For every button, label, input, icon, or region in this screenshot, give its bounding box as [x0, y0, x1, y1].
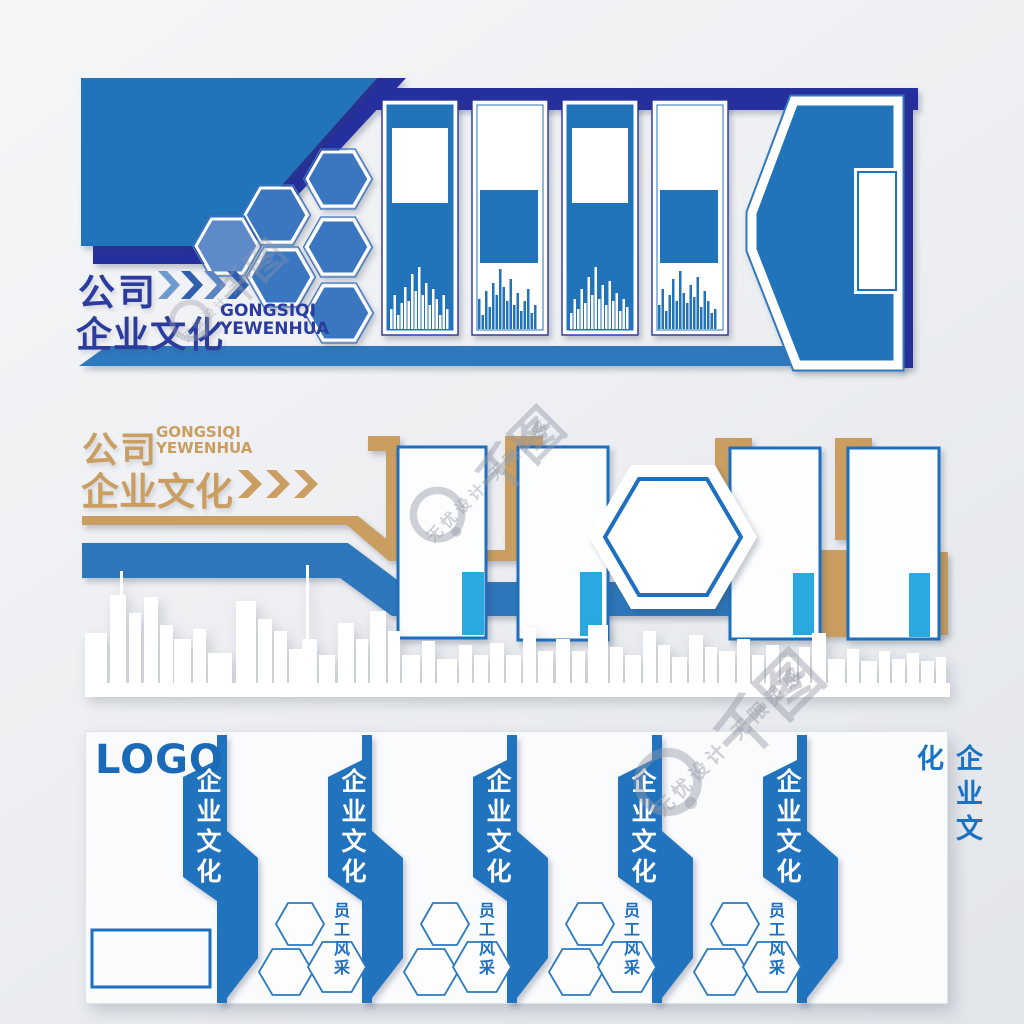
building [110, 595, 126, 683]
hexagon-frame-icon [421, 903, 469, 945]
big-hexagon-board [752, 101, 900, 365]
building [907, 653, 919, 683]
building [236, 601, 256, 683]
building [936, 657, 946, 683]
bar [531, 313, 534, 329]
bar [499, 269, 502, 329]
bar [672, 279, 675, 329]
building [812, 633, 826, 683]
building [437, 659, 457, 683]
bar [429, 305, 432, 329]
bar [524, 301, 527, 329]
bar [577, 309, 580, 329]
bar [446, 309, 449, 329]
building [556, 639, 570, 683]
building [506, 655, 521, 683]
bar [686, 303, 689, 329]
building [388, 631, 400, 683]
bar [520, 311, 523, 329]
building [737, 639, 750, 683]
bar [418, 267, 421, 329]
bar [485, 291, 488, 329]
building [847, 649, 859, 683]
hexagon-icon [307, 220, 369, 274]
hexagon-frame-icon [566, 903, 614, 945]
building [370, 611, 386, 683]
antenna-spire [306, 565, 309, 683]
bar [492, 283, 495, 329]
building [289, 649, 302, 683]
building [799, 647, 810, 683]
building [319, 655, 335, 683]
hexagon-icon [250, 250, 312, 304]
bar [506, 301, 509, 329]
bar [605, 305, 608, 329]
building [689, 635, 703, 683]
bar [478, 299, 481, 329]
bar [623, 299, 626, 329]
bar [658, 305, 661, 329]
building [160, 625, 173, 683]
bar [683, 293, 686, 329]
bar [588, 277, 591, 329]
bar [489, 307, 492, 329]
building [828, 659, 845, 683]
building [490, 643, 504, 683]
antenna-spire [120, 571, 123, 683]
bar [612, 301, 615, 329]
building [338, 623, 354, 683]
bar [510, 279, 513, 329]
bar [415, 291, 418, 329]
bar [570, 313, 573, 329]
bar [711, 313, 714, 329]
bar [704, 291, 707, 329]
staff-style-label: 员 工 风 采 [612, 901, 656, 977]
building [588, 625, 608, 683]
bar [411, 274, 414, 329]
bar [595, 267, 598, 329]
building [402, 655, 420, 683]
bar [602, 285, 605, 329]
bar [408, 301, 411, 329]
building [705, 647, 717, 683]
building [356, 639, 368, 683]
building [719, 651, 735, 683]
building [523, 628, 536, 683]
top-wall-subtitle: 企业文化 [76, 306, 224, 358]
bar [534, 305, 537, 329]
bar [693, 297, 696, 329]
bar [496, 295, 499, 329]
bar [662, 289, 665, 329]
building [921, 661, 934, 683]
building [459, 645, 472, 683]
staff-style-label: 员 工 风 采 [467, 901, 511, 977]
bar [676, 301, 679, 329]
building [474, 655, 488, 683]
building [538, 651, 553, 683]
ribbon-label: 企业文化 [769, 768, 805, 898]
bar [443, 295, 446, 329]
bar [397, 315, 400, 329]
bar [436, 299, 439, 329]
bar [626, 307, 629, 329]
bar [503, 287, 506, 329]
bar [584, 303, 587, 329]
building [303, 639, 317, 683]
chevron-right-icons-mid [238, 470, 328, 500]
building [879, 651, 890, 683]
top-wall-pinyin: GONGSIQI YEWENHUA [220, 303, 329, 339]
bar [432, 289, 435, 329]
building [658, 645, 670, 683]
building [144, 597, 158, 683]
bar [616, 293, 619, 329]
building [85, 633, 107, 683]
building [672, 657, 687, 683]
hexagon-frame-icon [259, 949, 313, 995]
building [193, 629, 206, 683]
bar [574, 299, 577, 329]
bar [513, 305, 516, 329]
design-canvas: 公司 企业文化 GONGSIQI YEWENHUA 公司 GONGSIQI YE… [0, 0, 1024, 1024]
hexagon-frame-icon [694, 949, 748, 995]
building [572, 651, 585, 683]
bar [700, 307, 703, 329]
building [752, 655, 764, 683]
hexagon-frame-icon [404, 949, 458, 995]
hexagon-icon [307, 152, 369, 206]
bar [619, 311, 622, 329]
hexagon-frame-icon [276, 903, 324, 945]
building [781, 657, 797, 683]
bar [401, 303, 404, 329]
bar [669, 295, 672, 329]
center-hexagon-frame [597, 472, 749, 602]
bar [439, 315, 442, 329]
bar [425, 283, 428, 329]
hexagon-frame-icon [549, 949, 603, 995]
building [861, 661, 877, 683]
bar [598, 299, 601, 329]
ribbon-label: 企业文化 [189, 768, 225, 898]
building [129, 613, 141, 683]
bar [517, 293, 520, 329]
staff-style-label: 员 工 风 采 [757, 901, 801, 977]
bar [690, 285, 693, 329]
ribbon-label: 企业文化 [624, 768, 660, 898]
building [610, 647, 623, 683]
building [208, 653, 232, 683]
hexagon-frame-icon [711, 903, 759, 945]
staff-style-label: 员 工 风 采 [322, 901, 366, 977]
bar [422, 295, 425, 329]
building [625, 655, 641, 683]
bottom-wall-right-label: 企业文化 [908, 744, 986, 874]
building [274, 631, 287, 683]
building [422, 641, 435, 683]
bar [394, 295, 397, 329]
blank-plaque [92, 930, 210, 987]
bar [482, 315, 485, 329]
bar [527, 289, 530, 329]
ribbon-label: 企业文化 [334, 768, 370, 898]
bar [609, 281, 612, 329]
bar [665, 311, 668, 329]
hexagon-icon [196, 219, 258, 273]
bar [714, 309, 717, 329]
building [892, 659, 905, 683]
building [766, 645, 779, 683]
building [174, 639, 191, 683]
mid-wall-pinyin: GONGSIQI YEWENHUA [156, 425, 252, 457]
building [258, 619, 272, 683]
bar [404, 287, 407, 329]
mid-wall-subtitle: 企业文化 [81, 461, 233, 516]
bar [707, 301, 710, 329]
building [643, 631, 656, 683]
bar [697, 277, 700, 329]
ribbon-label: 企业文化 [479, 768, 515, 898]
bar [390, 309, 393, 329]
bar [591, 295, 594, 329]
bar [581, 289, 584, 329]
bar [679, 271, 682, 329]
chevron-right-icons-top [158, 271, 249, 299]
